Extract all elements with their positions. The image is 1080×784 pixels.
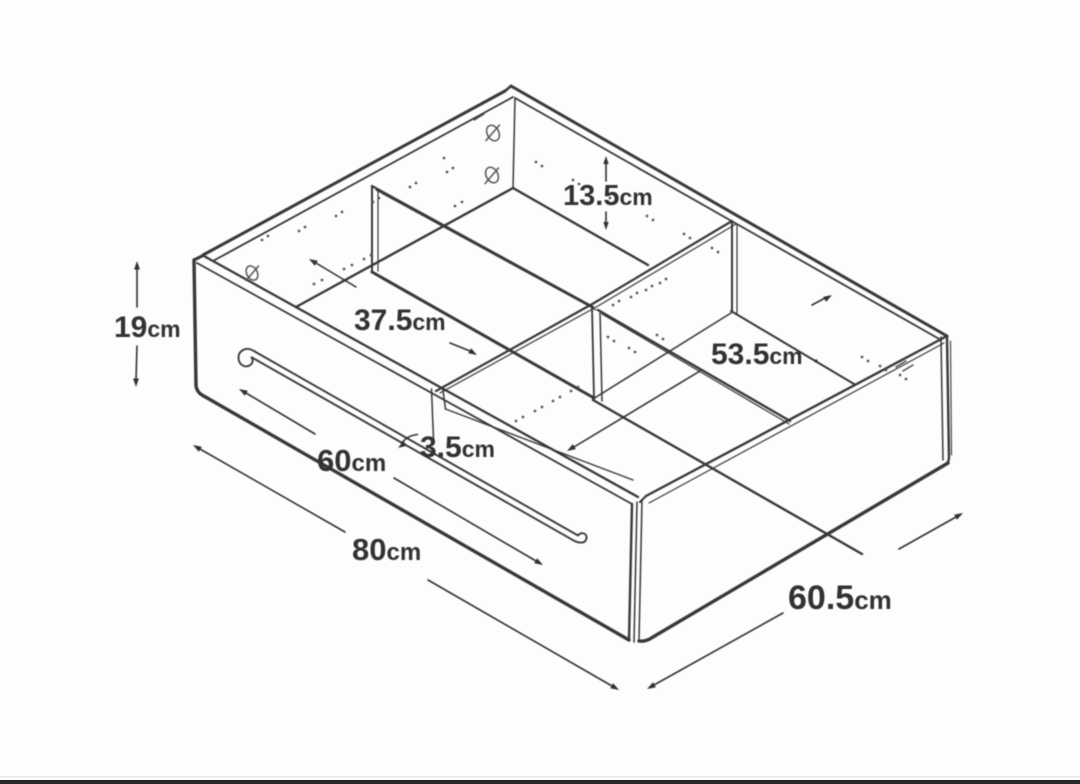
svg-text:53.5cm: 53.5cm (711, 338, 803, 371)
svg-text:13.5cm: 13.5cm (563, 180, 653, 212)
svg-text:3.5cm: 3.5cm (420, 431, 495, 464)
svg-text:37.5cm: 37.5cm (354, 304, 446, 337)
svg-text:60.5cm: 60.5cm (788, 579, 892, 617)
svg-text:19cm: 19cm (114, 311, 181, 344)
